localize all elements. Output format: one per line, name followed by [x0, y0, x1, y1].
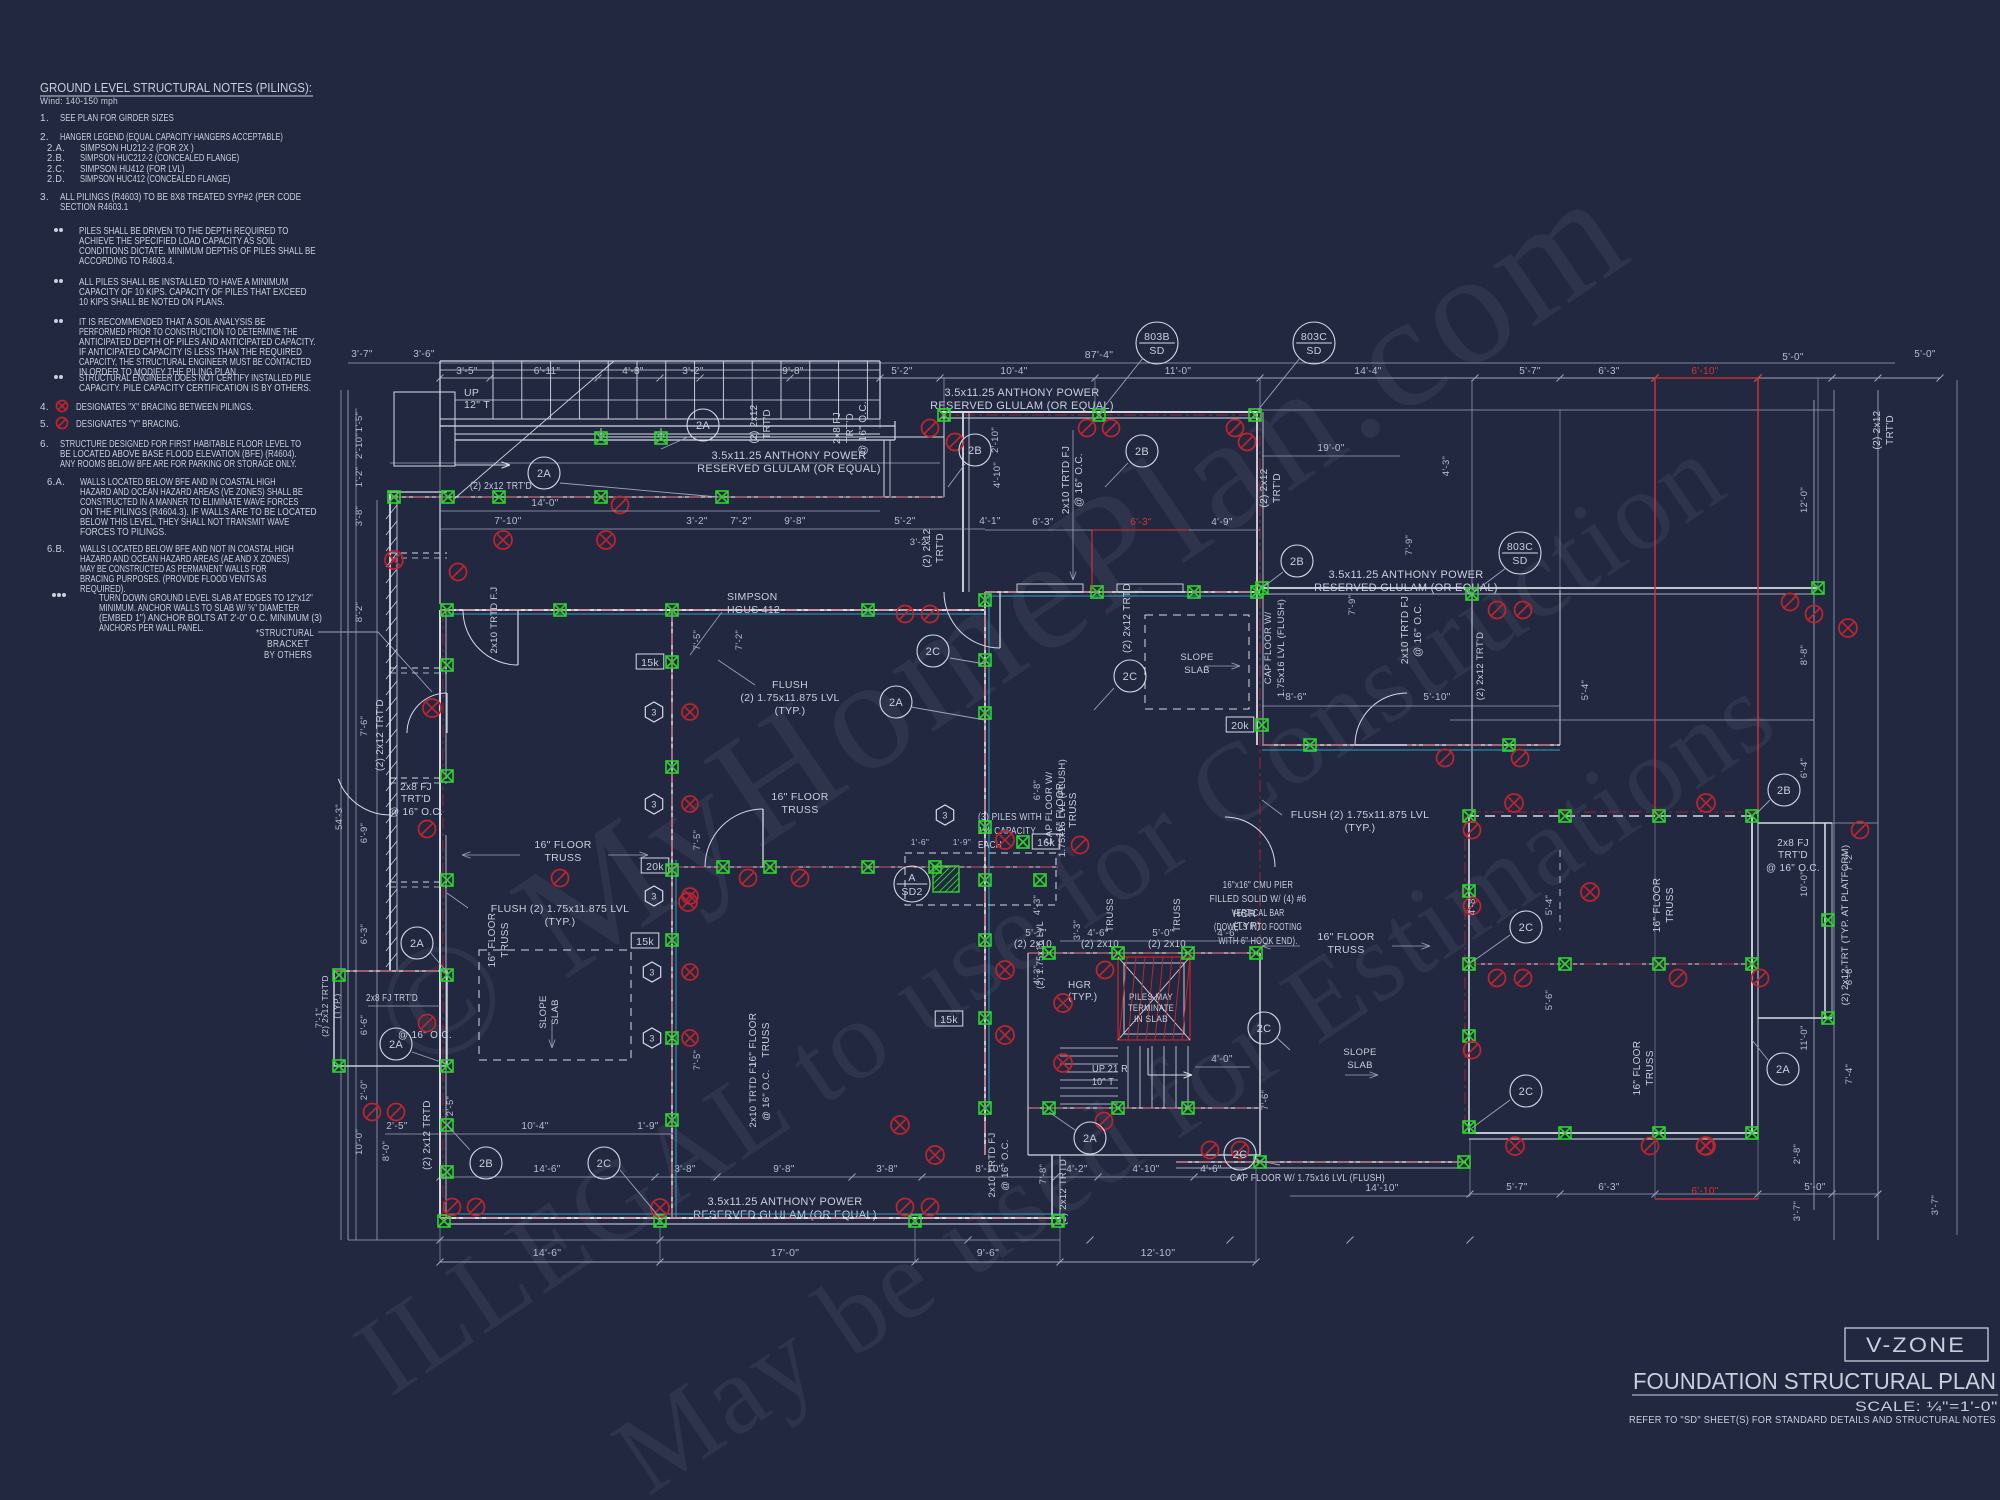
- svg-text:5'-0": 5'-0": [1914, 349, 1936, 360]
- svg-text:(2) 2x12 TRTD: (2) 2x12 TRTD: [1122, 583, 1133, 653]
- svg-text:6.: 6.: [40, 439, 49, 450]
- svg-text:SD: SD: [1306, 345, 1321, 357]
- svg-text:3'-2": 3'-2": [686, 516, 708, 527]
- svg-text:*STRUCTURAL: *STRUCTURAL: [256, 628, 314, 639]
- svg-text:2x8 FJ TRT'D: 2x8 FJ TRT'D: [366, 993, 418, 1004]
- svg-text:4'-10": 4'-10": [1132, 1164, 1159, 1175]
- svg-text:2C: 2C: [1233, 1149, 1248, 1161]
- svg-text:7'-5": 7'-5": [692, 630, 703, 650]
- svg-text:4.: 4.: [40, 402, 49, 413]
- svg-text:SLOPE: SLOPE: [1343, 1047, 1376, 1058]
- svg-text:12'-10": 12'-10": [1141, 1247, 1176, 1259]
- svg-text:5'-10": 5'-10": [1423, 692, 1450, 703]
- svg-text:6'-3": 6'-3": [1598, 366, 1620, 377]
- svg-text:4'-8": 4'-8": [1467, 895, 1478, 915]
- svg-text:(2) 1.75x11.875 LVL: (2) 1.75x11.875 LVL: [740, 692, 839, 704]
- svg-text:2.B.: 2.B.: [47, 153, 65, 164]
- svg-text:20k: 20k: [646, 861, 664, 873]
- svg-text:1'-9": 1'-9": [953, 837, 971, 847]
- svg-text:3: 3: [651, 800, 656, 810]
- svg-text:2B: 2B: [479, 1158, 493, 1170]
- svg-text:3'-8": 3'-8": [354, 506, 365, 526]
- svg-text:1.: 1.: [40, 113, 49, 124]
- svg-text:@ 16" O.C.: @ 16" O.C.: [389, 807, 443, 818]
- svg-text:2x8 FJ: 2x8 FJ: [1777, 838, 1809, 849]
- svg-text:3.5x11.25 ANTHONY POWER: 3.5x11.25 ANTHONY POWER: [944, 387, 1099, 399]
- svg-text:2'-8": 2'-8": [1792, 1144, 1803, 1164]
- svg-text:3.5x11.25 ANTHONY POWER: 3.5x11.25 ANTHONY POWER: [711, 450, 866, 462]
- svg-text:7'-6": 7'-6": [359, 716, 370, 736]
- svg-text:TERMINATE: TERMINATE: [1128, 1003, 1174, 1014]
- svg-text:3'-2": 3'-2": [682, 366, 704, 377]
- svg-text:19'-0": 19'-0": [1317, 443, 1344, 454]
- svg-text:@ 16" O.C.: @ 16" O.C.: [761, 1069, 772, 1120]
- svg-text:2x10 TRTD FJ: 2x10 TRTD FJ: [1400, 596, 1411, 664]
- svg-text:GROUND LEVEL STRUCTURAL NOTES: GROUND LEVEL STRUCTURAL NOTES (PILINGS):: [40, 81, 312, 95]
- svg-text:1'-9": 1'-9": [637, 1121, 659, 1132]
- svg-text:3'-7": 3'-7": [1792, 1201, 1803, 1221]
- svg-text:4'-10": 4'-10": [992, 462, 1003, 488]
- svg-text:87'-4": 87'-4": [1085, 349, 1114, 361]
- svg-text:6.B.: 6.B.: [47, 544, 65, 555]
- svg-text:TRT'D: TRT'D: [845, 413, 856, 443]
- svg-text:7'-10": 7'-10": [494, 516, 521, 527]
- svg-text:4'-6": 4'-6": [1200, 1164, 1222, 1175]
- svg-text:RESERVED GLULAM (OR EQUAL): RESERVED GLULAM (OR EQUAL): [930, 400, 1114, 412]
- svg-text:8'-0": 8'-0": [381, 1141, 392, 1161]
- svg-text:6'-10": 6'-10": [1691, 366, 1718, 377]
- svg-text:2B: 2B: [1135, 446, 1149, 458]
- svg-text:7'-5": 7'-5": [692, 1050, 703, 1070]
- svg-text:(2) 2x12 TRTD: (2) 2x12 TRTD: [422, 1100, 433, 1170]
- svg-text:SECTION R4603.1: SECTION R4603.1: [60, 202, 129, 213]
- svg-text:CAP FLOOR W/: CAP FLOOR W/: [1263, 612, 1274, 685]
- svg-text:6'-3": 6'-3": [1032, 517, 1054, 528]
- svg-text:16" FLOOR: 16" FLOOR: [487, 913, 498, 968]
- svg-text:(TYP.): (TYP.): [332, 993, 342, 1018]
- svg-text:7'-8": 7'-8": [1038, 1164, 1049, 1184]
- svg-text:5'-0": 5'-0": [1152, 928, 1174, 939]
- svg-text:5'-6": 5'-6": [1544, 990, 1555, 1010]
- svg-text:CAP FLOOR W/: CAP FLOOR W/: [1044, 772, 1055, 845]
- svg-text:803C: 803C: [1301, 331, 1327, 343]
- svg-text:9'-8": 9'-8": [773, 1164, 795, 1175]
- svg-text:14'-0": 14'-0": [531, 498, 558, 509]
- svg-text:SEE PLAN FOR GIRDER SIZES: SEE PLAN FOR GIRDER SIZES: [60, 113, 174, 124]
- svg-text:UP 21 R: UP 21 R: [1092, 1063, 1128, 1075]
- svg-text:7'-4": 7'-4": [1844, 1064, 1855, 1084]
- svg-text:2C: 2C: [926, 646, 941, 658]
- svg-text:(2) 2x12 TRT'D: (2) 2x12 TRT'D: [1475, 632, 1486, 701]
- svg-text:4'-2": 4'-2": [1066, 1164, 1088, 1175]
- svg-text:5'-2": 5'-2": [891, 366, 913, 377]
- svg-text:ACCORDING TO R4603.4.: ACCORDING TO R4603.4.: [79, 256, 175, 267]
- svg-text:TRT'D: TRT'D: [401, 794, 431, 805]
- svg-text:16"x16" CMU PIER: 16"x16" CMU PIER: [1223, 879, 1293, 891]
- svg-text:V-ZONE: V-ZONE: [1866, 1334, 1966, 1357]
- svg-text:A: A: [908, 872, 915, 884]
- svg-text:4'-3": 4'-3": [1032, 965, 1043, 985]
- svg-text:5'-7": 5'-7": [1506, 1182, 1528, 1193]
- svg-text:2x10 TRTD FJ: 2x10 TRTD FJ: [987, 1132, 998, 1197]
- svg-text:4'-3": 4'-3": [1032, 895, 1043, 915]
- svg-text:@ 16" O.C.: @ 16" O.C.: [1074, 453, 1085, 507]
- svg-text:6'-10": 6'-10": [1691, 1186, 1718, 1197]
- svg-text:4'-1": 4'-1": [979, 516, 1001, 527]
- svg-text:3.5x11.25 ANTHONY POWER: 3.5x11.25 ANTHONY POWER: [1328, 569, 1483, 581]
- svg-text:7'-2": 7'-2": [734, 630, 745, 650]
- svg-text:2A: 2A: [696, 420, 710, 432]
- svg-text:1.75x16 LVL (FLUSH): 1.75x16 LVL (FLUSH): [1057, 759, 1068, 857]
- svg-text:FLUSH (2) 1.75x11.875 LVL: FLUSH (2) 1.75x11.875 LVL: [491, 903, 629, 915]
- svg-text:9'-8": 9'-8": [784, 516, 806, 527]
- svg-text:3: 3: [651, 708, 656, 718]
- svg-text:2A: 2A: [537, 468, 551, 480]
- svg-text:2A: 2A: [1776, 1064, 1790, 1076]
- svg-text:2x8 FJ: 2x8 FJ: [400, 782, 432, 793]
- svg-text:5'-7": 5'-7": [1519, 366, 1541, 377]
- svg-text:2A: 2A: [1083, 1133, 1097, 1145]
- svg-text:DESIGNATES "X" BRACING BETWEEN: DESIGNATES "X" BRACING BETWEEN PILINGS.: [76, 402, 253, 413]
- svg-text:3'-8": 3'-8": [674, 1164, 696, 1175]
- svg-text:1'-2": 1'-2": [354, 467, 365, 487]
- svg-text:2'-10": 2'-10": [990, 427, 1001, 453]
- svg-text:HANGER LEGEND (EQUAL CAPACITY: HANGER LEGEND (EQUAL CAPACITY HANGERS AC…: [60, 132, 283, 143]
- svg-text:6.A.: 6.A.: [47, 477, 65, 488]
- svg-text:16" FLOOR: 16" FLOOR: [771, 791, 828, 803]
- svg-text:TRT'D: TRT'D: [1885, 415, 1896, 445]
- svg-text:(2) 2x12 TRT'D: (2) 2x12 TRT'D: [320, 975, 330, 1037]
- svg-text:10'-4": 10'-4": [521, 1121, 548, 1132]
- svg-text:2C: 2C: [1123, 671, 1138, 683]
- svg-text:3'-8": 3'-8": [876, 1164, 898, 1175]
- svg-text:5'-7": 5'-7": [1025, 928, 1047, 939]
- svg-text:SIMPSON HUC412 (CONCEALED FLAN: SIMPSON HUC412 (CONCEALED FLANGE): [80, 174, 230, 185]
- svg-text:8'-6": 8'-6": [1285, 692, 1307, 703]
- svg-text:2B: 2B: [1290, 556, 1304, 568]
- svg-text:CAPACITY. PILE CAPACITY CERTIF: CAPACITY. PILE CAPACITY CERTIFICATION IS…: [79, 383, 311, 394]
- svg-text:2x10 TRTD FJ: 2x10 TRTD FJ: [748, 1062, 759, 1127]
- svg-text:TRUSS: TRUSS: [1665, 887, 1676, 922]
- svg-text:@ 16" O.C.: @ 16" O.C.: [1766, 863, 1820, 874]
- svg-text:3'-6": 3'-6": [413, 349, 435, 360]
- svg-text:TRT'D: TRT'D: [1778, 850, 1808, 861]
- svg-text:2B: 2B: [1777, 785, 1791, 797]
- svg-text:11'-0": 11'-0": [1165, 366, 1192, 377]
- svg-text:3.5x11.25 ANTHONY POWER: 3.5x11.25 ANTHONY POWER: [707, 1196, 862, 1208]
- svg-text:15k: 15k: [636, 936, 654, 948]
- svg-text:SD: SD: [1512, 555, 1527, 567]
- svg-text:TRUSS: TRUSS: [1645, 1050, 1656, 1085]
- svg-text:3'-2": 3'-2": [910, 537, 930, 548]
- svg-text:PILES MAY: PILES MAY: [1129, 992, 1173, 1003]
- svg-text:6'-3": 6'-3": [1598, 1182, 1620, 1193]
- svg-text:SLOPE: SLOPE: [1180, 652, 1213, 663]
- svg-text:TRT'D: TRT'D: [935, 533, 946, 563]
- svg-text:54'-3": 54'-3": [334, 804, 345, 830]
- svg-text:TRUSS: TRUSS: [1105, 898, 1116, 932]
- svg-text:10'-0": 10'-0": [1799, 871, 1810, 897]
- svg-text:4'-9": 4'-9": [1211, 517, 1233, 528]
- svg-text:TRUSS: TRUSS: [1327, 944, 1364, 956]
- svg-text:2C: 2C: [1257, 1023, 1272, 1035]
- svg-text:5'-0": 5'-0": [1782, 352, 1804, 363]
- svg-text:11'-0": 11'-0": [1799, 1025, 1810, 1050]
- svg-text:RESERVED GLULAM (OR EQUAL): RESERVED GLULAM (OR EQUAL): [697, 463, 881, 475]
- svg-text:(TYP.): (TYP.): [1345, 822, 1376, 834]
- svg-text:16" FLOOR: 16" FLOOR: [748, 1013, 759, 1068]
- svg-text:6'-3": 6'-3": [1130, 517, 1152, 528]
- svg-text:2C: 2C: [597, 1158, 612, 1170]
- svg-text:2C: 2C: [1519, 922, 1534, 934]
- svg-text:6'-3": 6'-3": [359, 924, 370, 944]
- svg-text:16" FLOOR: 16" FLOOR: [534, 839, 591, 851]
- svg-text:2'-10": 2'-10": [354, 433, 365, 459]
- svg-text:10'-4": 10'-4": [1000, 366, 1027, 377]
- svg-text:ANY ROOMS BELOW BFE ARE FOR PA: ANY ROOMS BELOW BFE ARE FOR PARKING OR S…: [60, 459, 297, 470]
- svg-text:20k: 20k: [1231, 720, 1249, 732]
- svg-text:TRUSS: TRUSS: [1068, 792, 1079, 827]
- svg-text:15k: 15k: [940, 1014, 958, 1026]
- svg-text:9'-6": 9'-6": [977, 1247, 999, 1259]
- svg-text:HGR: HGR: [1068, 980, 1091, 991]
- svg-text:SIMPSON HUC212-2 (CONCEALED FL: SIMPSON HUC212-2 (CONCEALED FLANGE): [80, 153, 239, 164]
- svg-text:ANCHORS PER WALL PANEL.: ANCHORS PER WALL PANEL.: [99, 623, 204, 634]
- svg-text:(2) 2x12: (2) 2x12: [1872, 410, 1883, 449]
- svg-text:10 KIPS SHALL BE NOTED ON PLAN: 10 KIPS SHALL BE NOTED ON PLANS.: [79, 297, 225, 308]
- svg-text:6'-4": 6'-4": [1799, 758, 1810, 778]
- svg-text:7'-5": 7'-5": [692, 830, 703, 850]
- svg-text:17'-0": 17'-0": [771, 1247, 800, 1259]
- svg-text:2C: 2C: [1519, 1086, 1534, 1098]
- svg-text:REFER TO "SD" SHEET(S) FOR STA: REFER TO "SD" SHEET(S) FOR STANDARD DETA…: [1629, 1414, 1996, 1426]
- svg-text:3: 3: [651, 892, 656, 902]
- svg-text:TRUSS: TRUSS: [1172, 898, 1183, 932]
- svg-text:TRUSS: TRUSS: [544, 852, 581, 864]
- svg-text:2'-5": 2'-5": [445, 1096, 456, 1116]
- svg-text:2A: 2A: [410, 938, 424, 950]
- svg-text:SLAB: SLAB: [1347, 1060, 1373, 1071]
- svg-text:CAP FLOOR W/ 1.75x16 LVL (FLUS: CAP FLOOR W/ 1.75x16 LVL (FLUSH): [1230, 1172, 1385, 1184]
- svg-text:5'-4": 5'-4": [1544, 895, 1555, 915]
- svg-text:(TYP.): (TYP.): [775, 705, 806, 717]
- svg-text:HGUS 412: HGUS 412: [727, 604, 780, 616]
- svg-text:TRUSS: TRUSS: [781, 804, 818, 816]
- svg-text:2B: 2B: [968, 445, 982, 457]
- svg-text:12'-0": 12'-0": [1799, 487, 1810, 513]
- svg-text:TRT'D: TRT'D: [1272, 473, 1283, 503]
- svg-text:(2) 2x12: (2) 2x12: [1259, 468, 1270, 507]
- svg-text:3'-3": 3'-3": [1072, 920, 1083, 940]
- svg-text:FILLED SOLID W/ (4) #6: FILLED SOLID W/ (4) #6: [1210, 893, 1307, 905]
- svg-text:2'-0": 2'-0": [359, 1080, 370, 1100]
- svg-text:4'-6": 4'-6": [1217, 928, 1239, 939]
- svg-text:3: 3: [649, 1034, 654, 1044]
- svg-text:7'-9": 7'-9": [1404, 535, 1415, 555]
- svg-text:4'-6": 4'-6": [1087, 928, 1109, 939]
- svg-text:SLAB: SLAB: [1184, 665, 1210, 676]
- svg-text:5.: 5.: [40, 419, 49, 430]
- svg-text:6'-11": 6'-11": [534, 366, 561, 377]
- svg-text:803C: 803C: [1507, 541, 1533, 553]
- svg-text:SD2: SD2: [901, 886, 922, 898]
- svg-text:UP: UP: [464, 387, 479, 399]
- svg-text:3.: 3.: [40, 192, 49, 203]
- svg-text:16" FLOOR: 16" FLOOR: [1632, 1041, 1643, 1096]
- svg-text:@ 16" O.C.: @ 16" O.C.: [858, 401, 869, 455]
- svg-text:3'-5": 3'-5": [456, 366, 478, 377]
- svg-text:(2) 2x10: (2) 2x10: [1014, 939, 1052, 950]
- svg-text:2x10 TRTD F.J: 2x10 TRTD F.J: [489, 587, 500, 654]
- svg-text:12" T: 12" T: [464, 399, 490, 411]
- svg-text:4'-3": 4'-3": [1441, 456, 1452, 476]
- svg-text:5'-4": 5'-4": [1580, 680, 1591, 700]
- svg-text:FOUNDATION STRUCTURAL PLAN: FOUNDATION STRUCTURAL PLAN: [1633, 1368, 1996, 1394]
- svg-text:6'-6": 6'-6": [359, 1015, 370, 1035]
- svg-text:SD: SD: [1149, 345, 1164, 357]
- svg-text:FLUSH (2) 1.75x11.875 LVL: FLUSH (2) 1.75x11.875 LVL: [1291, 809, 1429, 821]
- svg-text:3: 3: [649, 968, 654, 978]
- svg-text:14'-6": 14'-6": [533, 1164, 560, 1175]
- svg-text:14'-6": 14'-6": [533, 1247, 562, 1259]
- svg-text:10'-0": 10'-0": [354, 1129, 365, 1155]
- svg-text:5'-2": 5'-2": [894, 516, 916, 527]
- svg-text:14'-4": 14'-4": [1354, 366, 1381, 377]
- svg-text:16" FLOOR: 16" FLOOR: [1317, 931, 1374, 943]
- svg-text:9'-8": 9'-8": [782, 366, 804, 377]
- svg-text:RESERVED GLULAM (OR EQUAL): RESERVED GLULAM (OR EQUAL): [693, 1209, 877, 1221]
- svg-text:TRUSS: TRUSS: [500, 922, 511, 957]
- svg-text:SCALE: ¼"=1'-0": SCALE: ¼"=1'-0": [1855, 1398, 1998, 1414]
- svg-text:8'-8": 8'-8": [1799, 645, 1810, 665]
- svg-text:SIMPSON: SIMPSON: [727, 591, 778, 603]
- svg-text:8'-2": 8'-2": [354, 602, 365, 622]
- svg-text:(TYP.): (TYP.): [545, 916, 576, 928]
- svg-text:BY OTHERS: BY OTHERS: [264, 650, 312, 661]
- svg-text:16" FLOOR: 16" FLOOR: [1652, 878, 1663, 933]
- svg-text:14'-10": 14'-10": [1365, 1183, 1398, 1194]
- svg-text:FLUSH: FLUSH: [772, 679, 808, 691]
- svg-text:FORCES TO PILINGS.: FORCES TO PILINGS.: [80, 527, 167, 538]
- svg-text:TRT'D: TRT'D: [762, 409, 773, 439]
- svg-text:7'-9": 7'-9": [1347, 595, 1358, 615]
- svg-text:BRACKET: BRACKET: [267, 639, 309, 650]
- svg-text:6'-8": 6'-8": [1032, 780, 1043, 800]
- svg-text:1'-6": 1'-6": [911, 837, 929, 847]
- svg-text:2x10 TRTD FJ: 2x10 TRTD FJ: [1061, 446, 1072, 514]
- svg-text:@ 16" O.C.: @ 16" O.C.: [1000, 1139, 1011, 1190]
- svg-text:2x8 FJ: 2x8 FJ: [832, 412, 843, 444]
- svg-text:1.75x16 LVL (FLUSH): 1.75x16 LVL (FLUSH): [1276, 599, 1287, 697]
- svg-text:(2) 2x12 TRT (TYP. AT PLATFORM: (2) 2x12 TRT (TYP. AT PLATFORM): [1840, 845, 1851, 1006]
- svg-text:2'-5": 2'-5": [386, 1121, 408, 1132]
- svg-text:TRUSS: TRUSS: [761, 1022, 772, 1057]
- svg-text:Wind: 140-150 mph: Wind: 140-150 mph: [40, 96, 118, 107]
- svg-text:10" T: 10" T: [1092, 1076, 1114, 1088]
- svg-text:IN SLAB: IN SLAB: [1134, 1014, 1168, 1025]
- svg-text:1'-5": 1'-5": [354, 412, 365, 432]
- svg-text:DESIGNATES "Y" BRACING.: DESIGNATES "Y" BRACING.: [76, 419, 181, 430]
- svg-text:803B: 803B: [1144, 331, 1170, 343]
- svg-text:6'-9": 6'-9": [359, 823, 370, 843]
- svg-text:15k: 15k: [641, 657, 659, 669]
- svg-text:HGR: HGR: [1233, 909, 1256, 920]
- svg-text:2A: 2A: [389, 1039, 403, 1051]
- svg-text:2.D.: 2.D.: [47, 174, 65, 185]
- svg-text:4'-8": 4'-8": [622, 366, 644, 377]
- svg-text:5'-0": 5'-0": [1804, 1182, 1826, 1193]
- svg-text:4'-0": 4'-0": [1211, 1054, 1233, 1065]
- svg-text:7'-2": 7'-2": [730, 516, 752, 527]
- svg-text:2A: 2A: [889, 697, 903, 709]
- svg-text:3'-7": 3'-7": [351, 349, 373, 360]
- svg-text:2.: 2.: [40, 132, 49, 143]
- svg-text:3: 3: [942, 811, 947, 821]
- svg-text:@ 16" O.C.: @ 16" O.C.: [1413, 603, 1424, 657]
- svg-text:7'-6": 7'-6": [1260, 1090, 1271, 1110]
- svg-text:(2) 2x12 TRT'D: (2) 2x12 TRT'D: [375, 699, 386, 771]
- svg-text:SLOPE: SLOPE: [538, 995, 549, 1028]
- svg-text:3'-7": 3'-7": [1930, 1195, 1941, 1215]
- svg-text:(2) 2x12: (2) 2x12: [749, 404, 760, 443]
